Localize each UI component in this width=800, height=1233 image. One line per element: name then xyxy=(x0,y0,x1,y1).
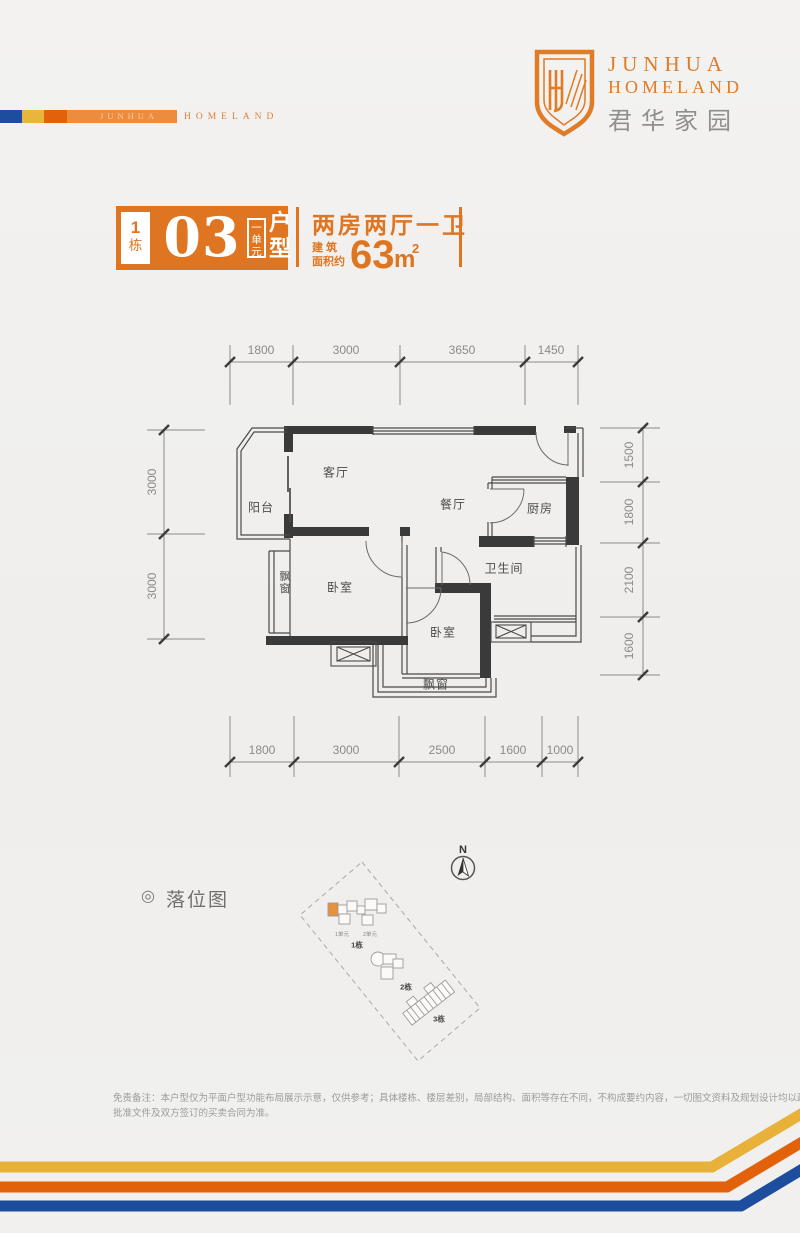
dim-left-1: 3000 xyxy=(145,469,159,496)
room-label-living: 客厅 xyxy=(323,464,349,481)
ribbon-segment-deep-orange xyxy=(44,110,67,123)
room-label-dining: 餐厅 xyxy=(440,496,466,513)
room-label-bedroom2: 卧室 xyxy=(430,624,456,641)
disclaimer-line2: 批准文件及双方签订的买卖合同为准。 xyxy=(113,1106,800,1121)
logo-name-chinese: 君华家园 xyxy=(608,101,740,136)
site-building1-label: 1栋 xyxy=(351,940,363,951)
ribbon-text: HOMELAND xyxy=(184,111,278,124)
site-boundary xyxy=(300,862,480,1061)
door-arcs xyxy=(366,432,568,623)
dim-top-3: 3650 xyxy=(449,343,476,357)
type-tag: 户型 xyxy=(268,210,292,262)
building-2-footprint xyxy=(371,952,403,979)
disclaimer-text: 免责备注：本户型仅为平面户型功能布局展示示意，仅供参考；具体楼栋、楼层差别，局部… xyxy=(113,1091,800,1121)
ribbon-segment-blue xyxy=(0,110,22,123)
site-unit2-label: 2单元 xyxy=(363,930,377,938)
room-label-bay-window-left: 飘窗 xyxy=(279,571,291,595)
dim-right-3: 2100 xyxy=(622,567,636,594)
disclaimer-line1: 免责备注：本户型仅为平面户型功能布局展示示意，仅供参考；具体楼栋、楼层差别，局部… xyxy=(113,1091,800,1106)
room-label-bedroom1: 卧室 xyxy=(327,579,353,596)
dim-right-4: 1600 xyxy=(622,633,636,660)
dim-right-1: 1500 xyxy=(622,442,636,469)
dimension-lines xyxy=(147,345,660,777)
area-number: 63 xyxy=(350,233,395,278)
dimension-ticks xyxy=(159,357,648,767)
dim-bottom-3: 2500 xyxy=(429,743,456,757)
area-label-line1: 建 筑 xyxy=(312,241,345,255)
bottom-stripes xyxy=(0,1110,800,1206)
title-divider-left xyxy=(296,207,299,267)
building-suffix: 栋 xyxy=(121,238,150,254)
area-label-line2: 面积约 xyxy=(312,255,345,269)
dim-right-2: 1800 xyxy=(622,499,636,526)
ribbon-watermark: JUNHUA xyxy=(100,110,158,123)
room-label-bay-window-bottom: 飘窗 xyxy=(423,676,449,693)
dim-top-4: 1450 xyxy=(538,343,565,357)
ribbon-segment-gold xyxy=(22,110,44,123)
dim-bottom-5: 1000 xyxy=(547,743,574,757)
title-divider-right xyxy=(459,207,462,267)
floor-plan-walls xyxy=(266,426,579,678)
room-label-bathroom: 卫生间 xyxy=(484,560,523,577)
logo-name-line1: JUNHUA xyxy=(608,52,728,77)
flyer-page: { "brand": { "logo_line1": "JUNHUA", "lo… xyxy=(0,0,800,1233)
unit-tag: 一单元 xyxy=(247,218,266,258)
site-building3-label: 3栋 xyxy=(433,1014,445,1025)
dim-bottom-4: 1600 xyxy=(500,743,527,757)
room-label-kitchen: 厨房 xyxy=(527,500,553,517)
site-building2-label: 2栋 xyxy=(400,982,412,993)
dim-top-2: 3000 xyxy=(333,343,360,357)
area-exponent: 2 xyxy=(412,241,419,256)
room-label-balcony: 阳台 xyxy=(248,499,274,516)
floor-plan-thin-walls xyxy=(237,426,583,697)
dim-bottom-1: 1800 xyxy=(249,743,276,757)
area-label: 建 筑 面积约 xyxy=(312,241,345,269)
unit-type-number: 03 xyxy=(156,206,248,270)
logo-name-line2: HOMELAND xyxy=(608,77,743,98)
compass-north-label: N xyxy=(459,844,467,856)
unit-title-block: 1 栋 03 一单元 户型 xyxy=(116,206,288,270)
dim-left-2: 3000 xyxy=(145,573,159,600)
site-map-section-title: 落位图 xyxy=(166,885,229,912)
section-bullet-icon: ◎ xyxy=(141,886,155,906)
dim-bottom-2: 3000 xyxy=(333,743,360,757)
building-1-footprint xyxy=(328,899,386,925)
brand-shield-icon xyxy=(537,52,592,134)
compass-icon xyxy=(452,857,475,880)
line-art-layer xyxy=(0,0,800,1233)
building-number: 1 xyxy=(121,218,150,238)
site-unit1-label: 1单元 xyxy=(335,930,349,938)
building-number-badge: 1 栋 xyxy=(121,212,150,264)
dim-top-1: 1800 xyxy=(248,343,275,357)
